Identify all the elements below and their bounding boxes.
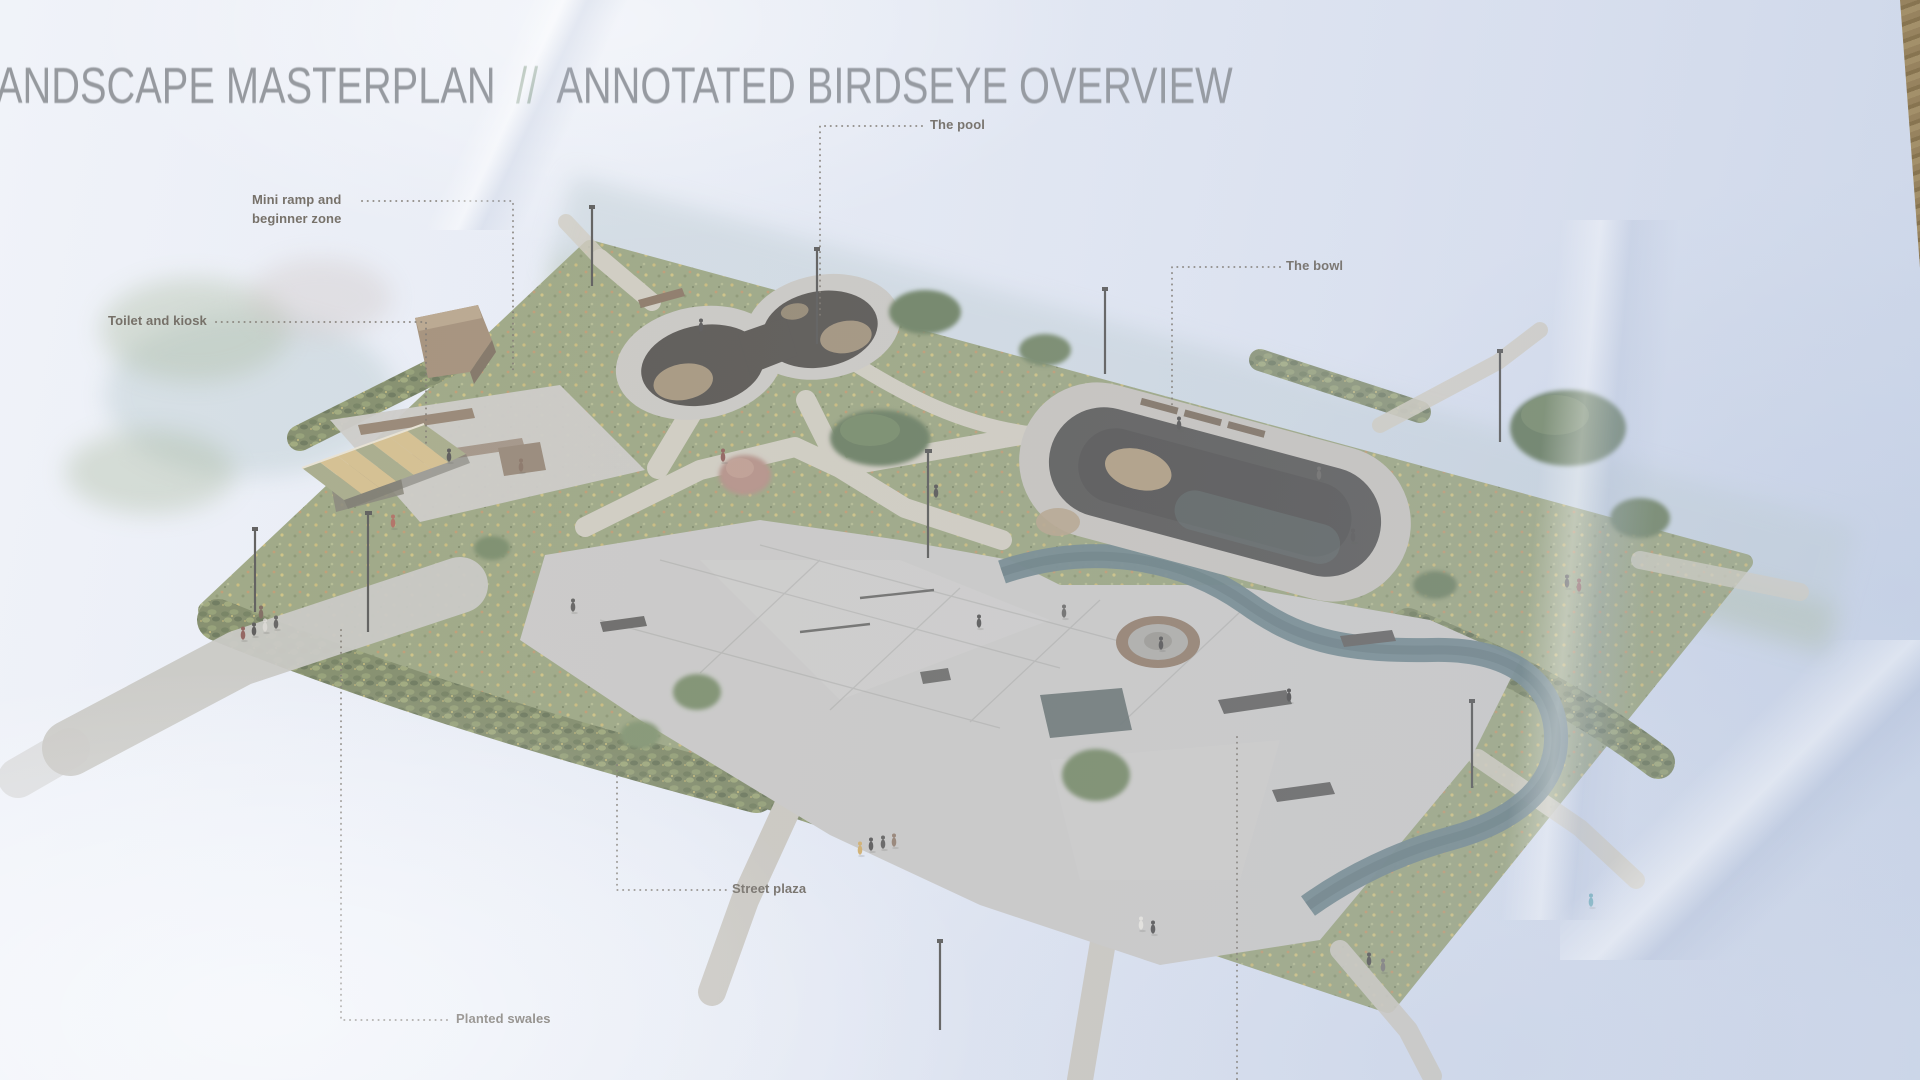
annotation-label-mini-ramp-line1: Mini ramp and [252, 192, 341, 207]
annotation-label-pool: The pool [930, 117, 985, 132]
leader-planted-swales [341, 630, 450, 1020]
page-title: ANDSCAPE MASTERPLAN // ANNOTATED BIRDSEY… [0, 56, 1233, 115]
page-title-separator: // [507, 57, 548, 114]
annotation-label-street-plaza: Street plaza [732, 881, 806, 896]
annotation-leader-lines [0, 0, 1920, 1080]
page-title-main: ANDSCAPE MASTERPLAN [0, 57, 496, 114]
annotation-label-bowl: The bowl [1286, 258, 1343, 273]
photographed-masterplan-page: The pool Mini ramp and beginner zone Toi… [0, 0, 1920, 1080]
annotation-label-mini-ramp-line2: beginner zone [252, 211, 341, 226]
leader-bowl [1172, 267, 1280, 406]
leader-toilet-kiosk [216, 322, 426, 447]
page-title-sub: ANNOTATED BIRDSEYE OVERVIEW [556, 57, 1232, 114]
annotation-label-toilet-kiosk: Toilet and kiosk [108, 313, 207, 328]
leader-pool [820, 126, 922, 316]
annotation-label-mini-ramp: Mini ramp and beginner zone [252, 192, 341, 226]
leader-street-plaza [617, 765, 726, 890]
annotation-label-planted-swales: Planted swales [456, 1011, 551, 1026]
leader-mini-ramp [362, 201, 513, 372]
